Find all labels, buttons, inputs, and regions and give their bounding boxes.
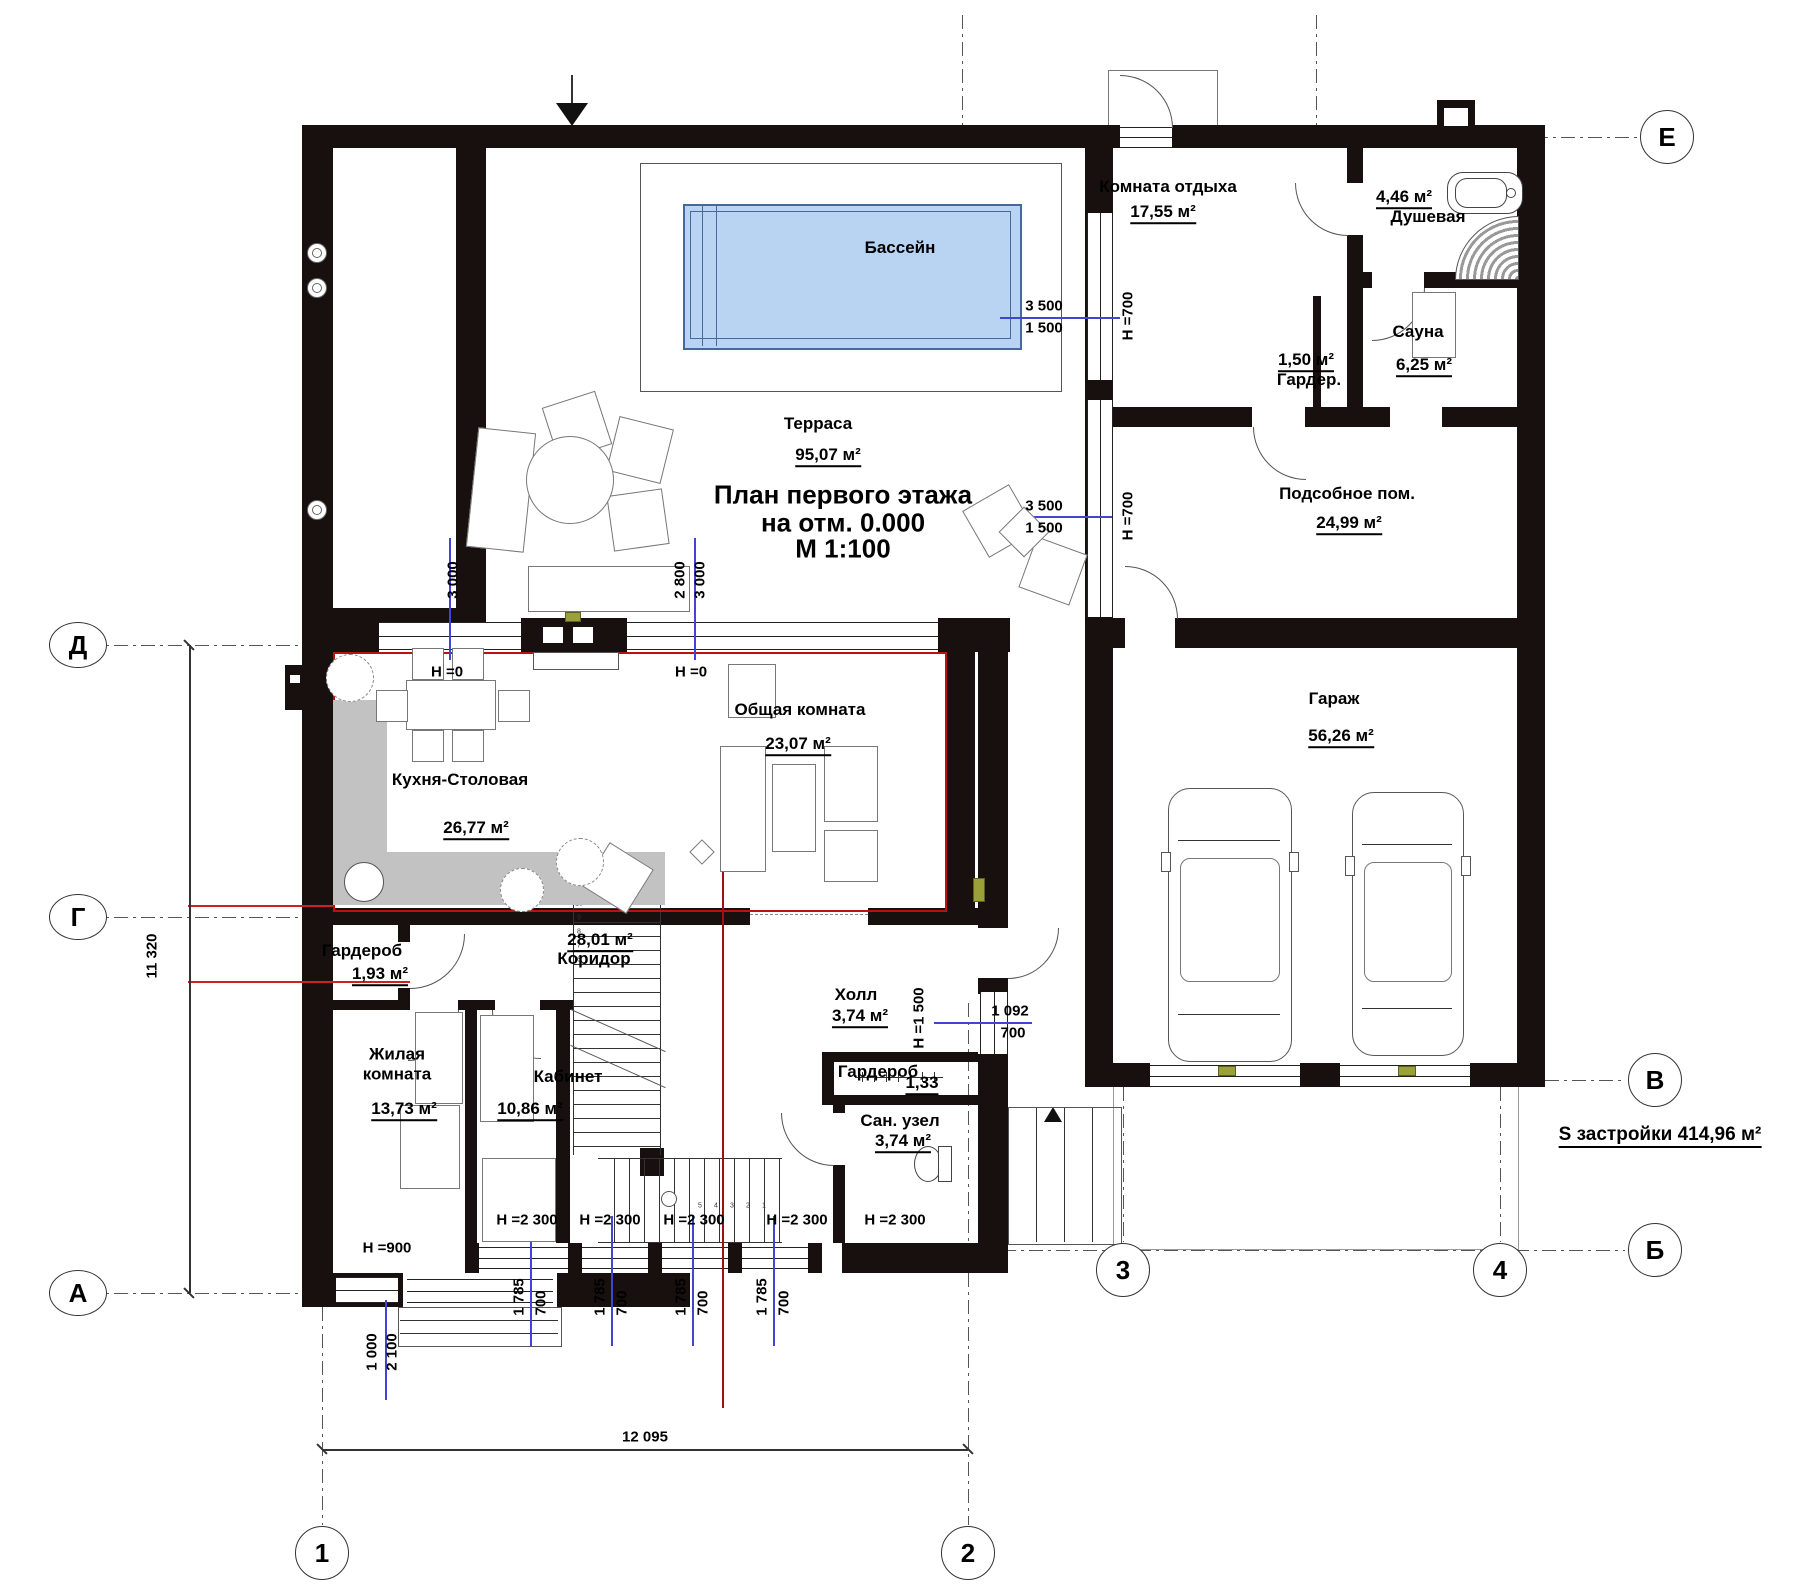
wall xyxy=(945,652,975,923)
stair-step-number: 9 xyxy=(577,915,581,922)
door-arc xyxy=(1295,183,1348,236)
dim-label-vertical: 1 785 xyxy=(754,1278,771,1316)
axis-circle-V: В xyxy=(1628,1053,1682,1107)
room-name-wc: Сан. узел xyxy=(860,1111,939,1131)
axis-circle-A: А xyxy=(49,1270,107,1316)
window xyxy=(1087,400,1113,617)
furniture-chair xyxy=(606,416,674,484)
window xyxy=(336,1277,398,1303)
dim-label: Н =2 300 xyxy=(766,1212,827,1229)
wall xyxy=(842,1243,1008,1273)
furniture-chair xyxy=(498,690,530,722)
dim-label: 1 092 xyxy=(991,1003,1029,1020)
wall xyxy=(1363,272,1372,288)
step-line xyxy=(1092,1108,1093,1242)
axis-circle-n4: 4 xyxy=(1473,1243,1527,1297)
stair-tread xyxy=(573,1048,661,1049)
stair-tread xyxy=(719,1158,720,1243)
window xyxy=(662,1247,728,1269)
wall-inset xyxy=(573,627,593,643)
wall xyxy=(302,125,1120,148)
furniture-sofa xyxy=(720,746,766,872)
dim-label: Н =0 xyxy=(675,664,707,681)
furniture-armchair xyxy=(824,830,878,882)
furniture-chair xyxy=(452,730,484,762)
axis-line xyxy=(962,15,963,125)
axis-circle-n2: 2 xyxy=(941,1526,995,1580)
axis-circle-n1: 1 xyxy=(295,1526,349,1580)
dim-label-vertical: 700 xyxy=(533,1290,550,1315)
room-area-wardrobe1: 1,93 м² xyxy=(352,964,408,986)
room-name-terrace: Терраса xyxy=(784,414,852,434)
car-mirror xyxy=(1161,852,1171,872)
entry-arrow-icon xyxy=(556,103,588,126)
room-name-study: Кабинет xyxy=(534,1067,603,1087)
dim-label: Н =900 xyxy=(363,1240,412,1257)
wall xyxy=(556,1008,570,1243)
dim-label-vertical: Н =700 xyxy=(1120,492,1137,541)
wall xyxy=(833,1165,845,1243)
dim-label: 3 500 xyxy=(1025,298,1063,315)
stair-tread xyxy=(779,1158,780,1243)
axis-circle-E: Е xyxy=(1640,110,1694,164)
stair-tread xyxy=(644,1158,645,1243)
dim-line-blue xyxy=(773,1216,775,1346)
plant-icon xyxy=(326,654,374,702)
plan-title: М 1:100 xyxy=(795,534,890,565)
stair-tread xyxy=(629,1158,630,1243)
room-name-closet: Гардер. xyxy=(1277,370,1341,390)
stair-break xyxy=(570,1009,665,1052)
plant-icon xyxy=(500,868,544,912)
furniture-sofa xyxy=(466,427,536,552)
dim-label: Н =0 xyxy=(431,664,463,681)
open-lintel xyxy=(750,914,868,915)
wall xyxy=(1085,618,1125,648)
stair-tread xyxy=(573,1034,661,1035)
axis-circle-n3: 3 xyxy=(1096,1243,1150,1297)
entry-arrow-stem xyxy=(571,75,573,103)
door-arc xyxy=(1008,928,1059,979)
wall xyxy=(333,618,379,652)
room-area-wardrobe2: 1,33 xyxy=(905,1073,938,1095)
stair-tread xyxy=(614,1158,615,1243)
room-name-bedroom: Жилая комната xyxy=(347,1044,447,1083)
door-arc xyxy=(410,934,465,989)
bathtub-inner xyxy=(1455,178,1507,208)
stair-tread xyxy=(573,1104,661,1105)
toilet-tank-icon xyxy=(938,1146,952,1182)
room-area-closet: 1,50 м² xyxy=(1278,350,1334,372)
step-line xyxy=(400,1333,558,1334)
stair-rail xyxy=(598,1242,782,1243)
stair-tread xyxy=(573,992,661,993)
wall xyxy=(1347,235,1363,407)
stair-post-icon xyxy=(661,1191,677,1207)
dim-line xyxy=(189,645,191,1293)
wall xyxy=(728,1243,742,1273)
room-area-bedroom: 13,73 м² xyxy=(371,1099,437,1121)
furniture-chair xyxy=(606,488,669,551)
furniture-chair xyxy=(376,690,408,722)
dim-line-blue xyxy=(449,538,451,660)
dim-line-blue xyxy=(692,1216,694,1346)
dim-label-vertical: 1 785 xyxy=(511,1278,528,1316)
wall xyxy=(822,1062,834,1095)
dim-label-vertical: Н =700 xyxy=(1120,292,1137,341)
room-name-pool: Бассейн xyxy=(865,238,936,258)
room-area-hall: 3,74 м² xyxy=(832,1006,888,1028)
dim-label-vertical: 2 800 xyxy=(672,561,689,599)
utility-marker xyxy=(1218,1066,1236,1076)
stair-tread xyxy=(734,1158,735,1243)
car-trunk-line xyxy=(1362,1008,1452,1009)
car-mirror xyxy=(1289,852,1299,872)
wall xyxy=(648,1243,662,1273)
dim-label-vertical: 11 320 xyxy=(144,933,161,978)
furniture-dining-table xyxy=(406,680,496,730)
room-area-living: 23,07 м² xyxy=(765,734,831,756)
wall xyxy=(465,1243,479,1273)
dim-label-vertical: 1 785 xyxy=(673,1278,690,1316)
fireplace-hearth xyxy=(533,652,619,670)
stair-tread xyxy=(573,1006,661,1007)
window xyxy=(582,1247,648,1269)
floor-plan-canvas: 1110987654321ЕДГВБА12343 5001 5003 5001 … xyxy=(0,0,1797,1596)
dim-line-blue xyxy=(1000,317,1120,319)
stair-tread xyxy=(749,1158,750,1243)
wall xyxy=(1172,125,1545,148)
wall xyxy=(978,1054,1008,1244)
room-area-utility: 24,99 м² xyxy=(1316,513,1382,535)
dim-label-vertical: 1 000 xyxy=(364,1333,381,1371)
stair-step-number: 4 xyxy=(714,1203,718,1210)
wall xyxy=(1305,407,1390,427)
dim-label-vertical: 700 xyxy=(695,1290,712,1315)
car-cabin xyxy=(1180,858,1280,982)
dim-label-vertical: Н =1 500 xyxy=(911,987,928,1048)
room-name-kitchen: Кухня-Столовая xyxy=(392,770,528,790)
car-mirror xyxy=(1345,856,1355,876)
wall xyxy=(808,1243,822,1273)
stair-step-number: 5 xyxy=(698,1203,702,1210)
door-arc xyxy=(1253,427,1306,480)
room-name-corridor: Коридор xyxy=(557,949,630,969)
window xyxy=(1120,127,1172,148)
stair-tread xyxy=(573,922,661,923)
room-name-living: Общая комната xyxy=(735,700,866,720)
stair-tread xyxy=(573,1132,661,1133)
dim-label-vertical: 3 000 xyxy=(692,561,709,599)
axis-line xyxy=(322,1307,323,1525)
plan-title: План первого этажа xyxy=(714,480,972,511)
wall-inset xyxy=(543,627,563,643)
driveway-outline xyxy=(1113,1085,1519,1250)
wall-inset xyxy=(1444,108,1468,126)
wall xyxy=(568,1243,582,1273)
room-area-sauna: 6,25 м² xyxy=(1396,355,1452,377)
dim-line xyxy=(322,1449,968,1451)
dim-label: Н =2 300 xyxy=(864,1212,925,1229)
furniture-sofa xyxy=(824,746,878,822)
axis-circle-G: Г xyxy=(49,894,107,940)
stair-tread xyxy=(573,978,661,979)
pool-inner-line xyxy=(690,211,1011,339)
stair-tread xyxy=(573,1020,661,1021)
dim-label: 1 500 xyxy=(1025,320,1063,337)
axis-line xyxy=(975,1250,1625,1251)
wall xyxy=(822,1095,978,1105)
room-area-shower: 4,46 м² xyxy=(1376,187,1432,209)
built-area-summary: S застройки 414,96 м² xyxy=(1559,1124,1762,1148)
wall xyxy=(285,665,305,710)
utility-marker xyxy=(1398,1066,1416,1076)
room-area-wc: 3,74 м² xyxy=(875,1131,931,1153)
car-cabin xyxy=(1364,862,1452,982)
window xyxy=(742,1247,808,1269)
wall xyxy=(1470,1063,1545,1087)
dim-label: Н =2 300 xyxy=(663,1212,724,1229)
window xyxy=(1087,213,1113,380)
stair-tread xyxy=(573,1062,661,1063)
wall xyxy=(1517,148,1545,1085)
stair-step-number: 2 xyxy=(746,1203,750,1210)
window xyxy=(479,1247,568,1269)
wall xyxy=(465,1008,477,1273)
bathtub-drain-icon xyxy=(1506,188,1516,198)
stair-tread xyxy=(704,1158,705,1243)
dim-label-vertical: 3 000 xyxy=(445,561,462,599)
room-area-terrace: 95,07 м² xyxy=(795,445,861,467)
dim-line-blue xyxy=(611,1216,613,1346)
wall xyxy=(822,1052,978,1062)
car-hood-line xyxy=(1362,844,1452,845)
dim-label-vertical: 1 785 xyxy=(592,1278,609,1316)
column-marker-icon xyxy=(312,505,322,515)
car-mirror xyxy=(1461,856,1471,876)
room-name-garage: Гараж xyxy=(1309,689,1360,709)
wall xyxy=(833,1105,845,1113)
wall xyxy=(333,1000,410,1010)
dim-label-vertical: 700 xyxy=(614,1290,631,1315)
wall xyxy=(398,925,410,942)
dim-label-vertical: 700 xyxy=(776,1290,793,1315)
room-name-utility: Подсобное пом. xyxy=(1279,484,1415,504)
pool-step-line xyxy=(716,204,717,346)
room-name-hall: Холл xyxy=(835,985,878,1005)
stair-step-number: 3 xyxy=(730,1203,734,1210)
room-name-sauna: Сауна xyxy=(1392,322,1443,342)
dim-line-blue xyxy=(694,538,696,660)
red-section-line xyxy=(722,868,724,1408)
stair-tread xyxy=(573,1118,661,1119)
room-name-shower: Душевая xyxy=(1391,207,1466,227)
red-leader-line xyxy=(188,905,333,907)
axis-circle-B: Б xyxy=(1628,1223,1682,1277)
car-trunk-line xyxy=(1178,1014,1280,1015)
step-line xyxy=(400,1320,558,1321)
room-area-lounge: 17,55 м² xyxy=(1130,202,1196,224)
stair-tread xyxy=(573,1090,661,1091)
utility-marker xyxy=(565,612,581,622)
utility-marker xyxy=(973,878,985,902)
wall xyxy=(1085,1063,1150,1087)
pool-step-line xyxy=(702,204,703,346)
room-area-study: 10,86 м² xyxy=(497,1099,563,1121)
dim-label: 12 095 xyxy=(622,1429,668,1446)
column-marker-icon xyxy=(312,248,322,258)
wall xyxy=(1175,618,1545,648)
furniture-couch xyxy=(482,1158,556,1242)
stair-rail xyxy=(598,1158,782,1159)
dim-line-blue xyxy=(934,1022,1032,1024)
car-hood-line xyxy=(1178,840,1280,841)
dim-label: 1 500 xyxy=(1025,520,1063,537)
dim-label: 3 500 xyxy=(1025,498,1063,515)
axis-line xyxy=(1316,15,1317,125)
room-area-garage: 56,26 м² xyxy=(1308,726,1374,748)
plant-icon xyxy=(556,838,604,886)
axis-line xyxy=(1545,1080,1625,1081)
step-line xyxy=(1064,1108,1065,1242)
window xyxy=(627,622,938,650)
furniture-round-table xyxy=(526,436,614,524)
stair-tread xyxy=(689,1158,690,1243)
furniture-chair xyxy=(412,730,444,762)
wall xyxy=(1347,148,1363,183)
room-name-lounge: Комната отдыха xyxy=(1099,177,1237,197)
wall xyxy=(1442,407,1545,427)
door-arc xyxy=(781,1113,834,1166)
stair-tread xyxy=(764,1158,765,1243)
wall xyxy=(1300,1063,1340,1087)
stair-tread xyxy=(659,1158,660,1243)
stair-tread xyxy=(573,1146,661,1147)
room-name-wardrobe1: Гардероб xyxy=(322,941,402,961)
room-area-kitchen: 26,77 м² xyxy=(443,818,509,840)
dim-label-vertical: 2 100 xyxy=(384,1333,401,1371)
dim-label: 700 xyxy=(1000,1025,1025,1042)
wall-inset xyxy=(290,675,300,683)
step-line xyxy=(1036,1108,1037,1242)
kitchen-sink-icon xyxy=(344,862,384,902)
door-arc xyxy=(1125,566,1178,619)
stair-step-number: 1 xyxy=(762,1203,766,1210)
dim-label: Н =2 300 xyxy=(579,1212,640,1229)
exterior-steps xyxy=(1008,1107,1122,1245)
axis-circle-D: Д xyxy=(49,622,107,668)
furniture-bench xyxy=(528,566,690,612)
furniture-coffee-table xyxy=(772,764,816,852)
column-marker-icon xyxy=(312,283,322,293)
dim-label: Н =2 300 xyxy=(496,1212,557,1229)
